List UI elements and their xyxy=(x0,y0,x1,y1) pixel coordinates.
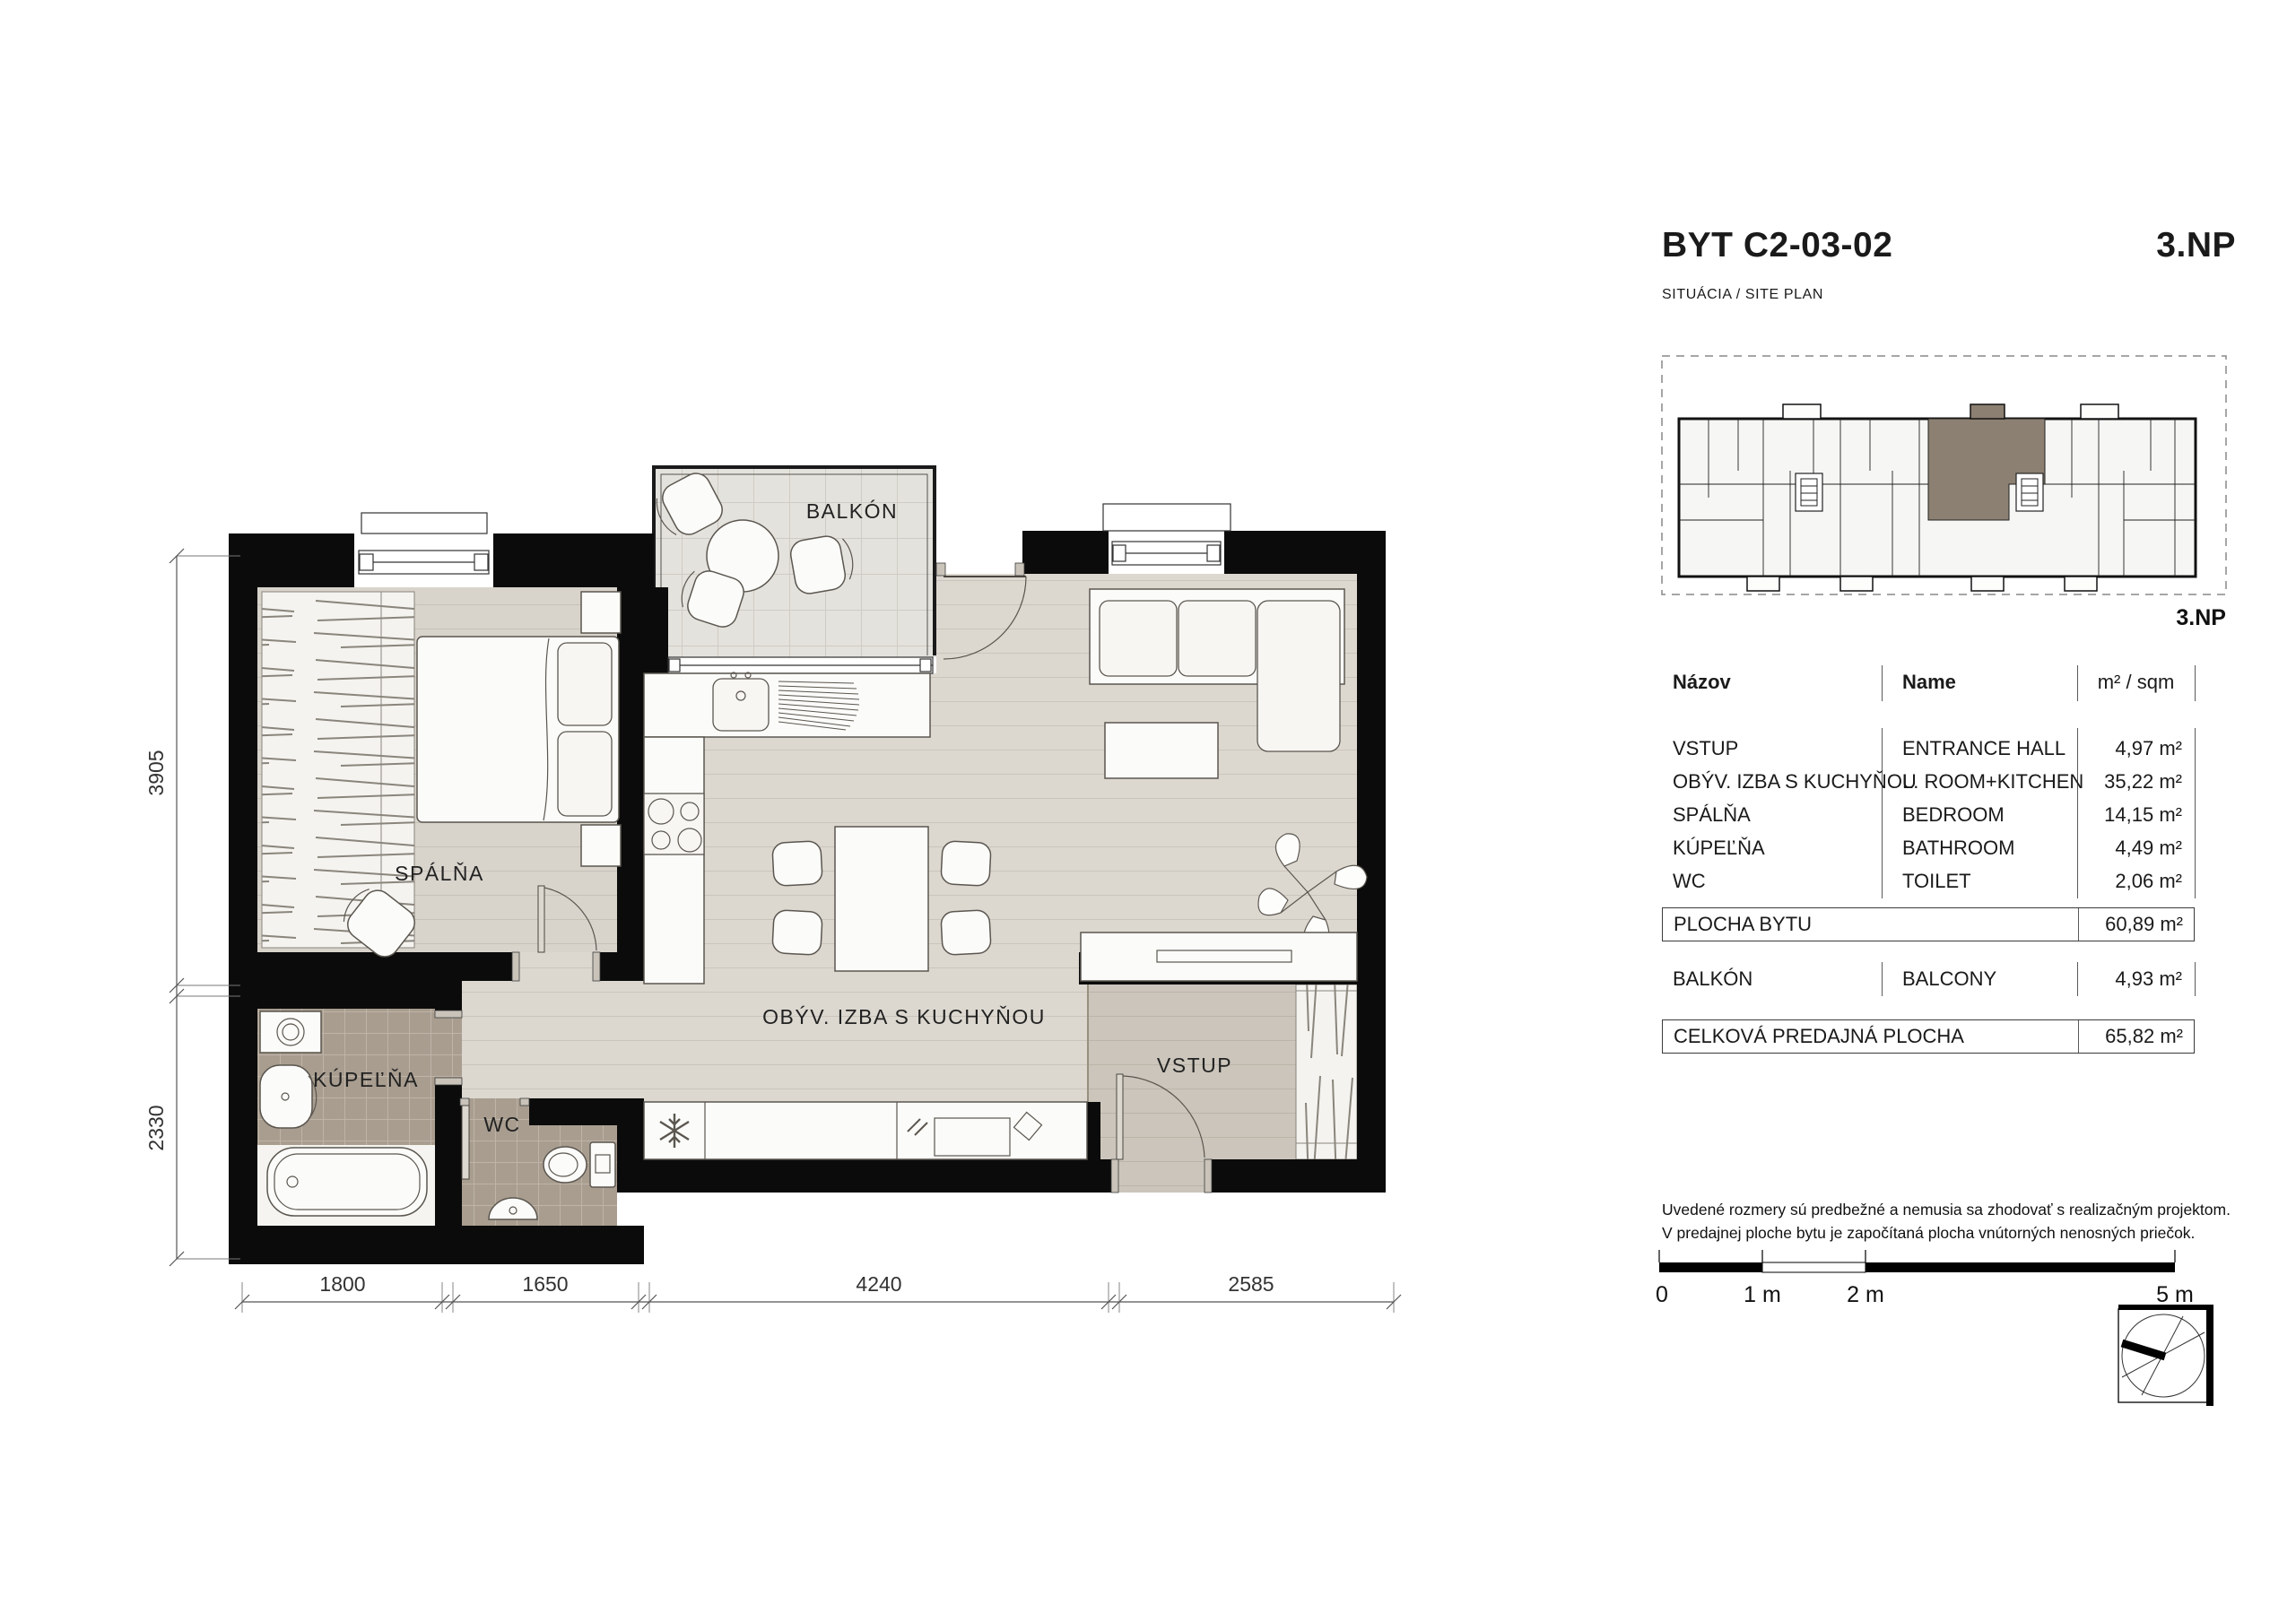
north-compass-icon xyxy=(2118,1305,2213,1406)
bedroom-wardrobe xyxy=(262,592,414,948)
nightstand xyxy=(581,592,621,633)
balcony-door-opening xyxy=(940,531,1022,574)
row-name: BALCONY xyxy=(1902,966,1996,993)
cooktop xyxy=(644,794,704,854)
row-name: BATHROOM xyxy=(1902,835,2014,862)
dim-left-bottom: 2330 xyxy=(144,1105,168,1150)
row-name: TOILET xyxy=(1902,868,1971,895)
table-separator xyxy=(1882,665,1883,701)
dim-bottom-3: 4240 xyxy=(856,1272,901,1296)
sofa-cushion xyxy=(1178,601,1256,676)
disclaimer-line-2: V predajnej ploche bytu je započítaná pl… xyxy=(1662,1221,2254,1245)
row-area: 2,06 m² xyxy=(2077,868,2182,895)
total-area-box: CELKOVÁ PREDAJNÁ PLOCHA 65,82 m² xyxy=(1662,1019,2195,1054)
row-name: ENTRANCE HALL xyxy=(1902,735,2066,762)
dim-bottom-1: 1800 xyxy=(319,1272,365,1296)
room-label-living: OBÝV. IZBA S KUCHYŇOU xyxy=(762,1005,1046,1028)
row-area: 4,97 m² xyxy=(2077,735,2182,762)
dining-table xyxy=(835,827,928,971)
pillow xyxy=(558,643,612,725)
scale-bar: 0 1 m 2 m 5 m xyxy=(1656,1250,2194,1307)
table-separator xyxy=(2195,665,2196,701)
stair-core xyxy=(1796,473,1822,511)
site-plan-floor-label: 3.NP xyxy=(2176,605,2226,630)
table-separator xyxy=(2195,728,2196,898)
row-area: 4,93 m² xyxy=(2077,966,2182,993)
entrance-wardrobe xyxy=(1296,984,1357,1159)
total-area-label: CELKOVÁ PREDAJNÁ PLOCHA xyxy=(1674,1020,1964,1053)
row-nazov: SPÁLŇA xyxy=(1673,802,1751,828)
page-title: BYT C2-03-02 xyxy=(1662,226,1892,265)
row-nazov: OBÝV. IZBA S KUCHYŇOU xyxy=(1673,768,1917,795)
drawing-sheet: SPÁLŇA BALKÓN OBÝV. IZBA S KUCHYŇOU VSTU… xyxy=(0,0,2296,1622)
flat-area-label: PLOCHA BYTU xyxy=(1674,908,1812,941)
row-area: 4,49 m² xyxy=(2077,835,2182,862)
scale-label-1m: 1 m xyxy=(1744,1282,1781,1307)
coffee-table xyxy=(1105,723,1218,778)
table-header-name: Name xyxy=(1902,669,1956,696)
entrance-door-leaf xyxy=(1117,1074,1123,1159)
scale-label-0: 0 xyxy=(1656,1282,1668,1307)
wc-door-leaf xyxy=(462,1106,469,1179)
scale-label-5m: 5 m xyxy=(2156,1282,2194,1307)
room-label-balcony: BALKÓN xyxy=(806,499,898,523)
scale-label-2m: 2 m xyxy=(1847,1282,1884,1307)
table-separator xyxy=(2078,908,2079,941)
page-subtitle: SITUÁCIA / SITE PLAN xyxy=(1662,287,1823,303)
row-nazov: KÚPEĽŇA xyxy=(1673,835,1765,862)
sofa-cushion xyxy=(1100,601,1177,676)
tv-sideboard xyxy=(1081,932,1357,981)
row-nazov: VSTUP xyxy=(1673,735,1738,762)
table-header-nazov: Názov xyxy=(1673,669,1731,696)
stair-core xyxy=(2016,473,2043,511)
room-label-bathroom: KÚPEĽŇA xyxy=(313,1068,419,1091)
site-plan: 3.NP xyxy=(1662,356,2226,630)
table-separator xyxy=(2078,1020,2079,1053)
kitchen-counter xyxy=(644,673,930,737)
dining-chair xyxy=(772,841,822,887)
total-area-value: 65,82 m² xyxy=(2078,1020,2183,1053)
cabinet-row xyxy=(644,1102,1087,1159)
kitchen-sink xyxy=(713,679,769,731)
row-area: 14,15 m² xyxy=(2077,802,2182,828)
room-label-entrance: VSTUP xyxy=(1157,1054,1232,1077)
dining-chair xyxy=(941,910,991,956)
flat-area-box: PLOCHA BYTU 60,89 m² xyxy=(1662,907,2195,941)
sofa-chaise xyxy=(1257,601,1340,751)
table-header-area: m² / sqm xyxy=(2077,669,2195,696)
dining-chair xyxy=(941,841,991,887)
table-separator xyxy=(2077,665,2078,701)
row-name: L. ROOM+KITCHEN xyxy=(1902,768,2083,795)
kitchen-counter-side xyxy=(644,737,704,984)
room-label-bedroom: SPÁLŇA xyxy=(395,862,484,885)
dining-chair xyxy=(772,910,822,956)
room-label-wc: WC xyxy=(483,1113,520,1136)
pillow xyxy=(558,732,612,816)
row-nazov: WC xyxy=(1673,868,1706,895)
flat-area-value: 60,89 m² xyxy=(2078,908,2183,941)
row-nazov: BALKÓN xyxy=(1673,966,1752,993)
table-separator xyxy=(1882,962,1883,996)
dim-bottom-2: 1650 xyxy=(522,1272,568,1296)
bathtub xyxy=(267,1148,427,1216)
bedroom-door-leaf xyxy=(538,886,544,952)
dim-bottom-4: 2585 xyxy=(1228,1272,1274,1296)
washbasin xyxy=(260,1065,317,1128)
table-separator xyxy=(1882,728,1883,898)
nightstand xyxy=(581,825,621,866)
row-area: 35,22 m² xyxy=(2077,768,2182,795)
disclaimer-line-1: Uvedené rozmery sú predbežné a nemusia s… xyxy=(1662,1198,2254,1221)
washing-machine xyxy=(260,1011,321,1053)
floor-label: 3.NP xyxy=(2054,226,2236,265)
dim-left-top: 3905 xyxy=(144,750,168,795)
row-name: BEDROOM xyxy=(1902,802,2005,828)
table-separator xyxy=(2195,962,2196,996)
disclaimer: Uvedené rozmery sú predbežné a nemusia s… xyxy=(1662,1198,2254,1245)
